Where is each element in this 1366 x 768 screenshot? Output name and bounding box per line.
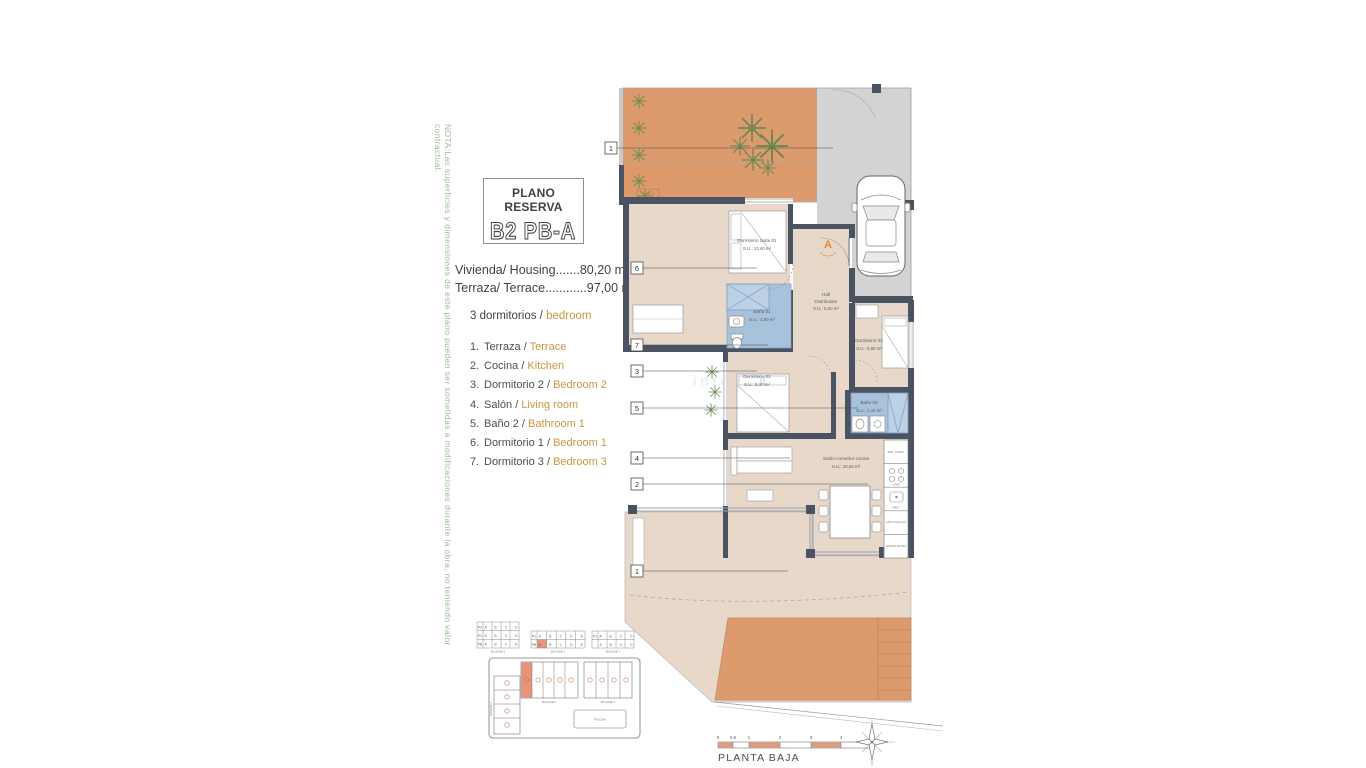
living-room: Salón-comedor-cocina S.U.: 26,50 m² bbox=[633, 447, 881, 570]
kitchen-unit-label: BAR. LAVAD. bbox=[888, 450, 905, 454]
lower-terrace bbox=[625, 512, 911, 702]
legend-en: Living room bbox=[521, 399, 578, 411]
legend-item: 5.Baño 2 / Bathroom 1 bbox=[470, 418, 607, 430]
hob-icon bbox=[889, 468, 903, 481]
keyplan-block-label: BLOQUE 1 bbox=[606, 650, 620, 654]
legend-item: 2.Cocina / Kitchen bbox=[470, 360, 607, 372]
scale-tick: 0 bbox=[717, 735, 720, 740]
bedroom-3: Dormitorio 03 S.U.: 6,60 m² bbox=[855, 305, 908, 382]
room-dorm3-name: Dormitorio 03 bbox=[855, 338, 883, 343]
kitchen-units: BAR. LAVAD. VITRO FREG. LAVA VAJILLAS HO… bbox=[884, 440, 908, 558]
plan-code-art: B2 PB-A bbox=[485, 214, 582, 248]
legend-es: Terraza / bbox=[484, 341, 527, 353]
legend-en: Bedroom 1 bbox=[553, 437, 607, 449]
plan-kicker: PLANO RESERVA bbox=[484, 186, 583, 214]
room-dorm3-area: S.U.: 6,60 m² bbox=[856, 346, 882, 351]
legend-item: 3.Dormitorio 2 / Bedroom 2 bbox=[470, 379, 607, 391]
watermark: interhome bbox=[693, 373, 796, 390]
entrance-marker: A bbox=[824, 239, 832, 251]
marker-7: 7 bbox=[635, 341, 639, 350]
kitchen-unit-label: VITRO bbox=[892, 484, 899, 487]
sink-icon bbox=[890, 492, 903, 502]
keyplan-row-label: P1 bbox=[478, 634, 482, 638]
keyplan-cells: A B C D bbox=[485, 634, 519, 638]
keyplan-block-label: BLOQUE 3 bbox=[491, 650, 505, 654]
kitchen-unit-label: HORNO MICRO bbox=[886, 544, 907, 548]
scale-tick: 5 bbox=[871, 735, 874, 740]
keyplan-cells: A B C D bbox=[485, 626, 519, 630]
room-salon-name: Salón-comedor-cocina bbox=[823, 456, 869, 461]
plan-markers: 1 6 7 3 5 4 2 1 bbox=[605, 142, 868, 577]
legend-en: Bedroom 3 bbox=[553, 456, 607, 468]
keyplan-cells: A B C D E bbox=[539, 643, 583, 647]
area-summary: Vivienda/ Housing.......80,20 m² Terraza… bbox=[455, 262, 636, 297]
kitchen-unit-label: LAVA VAJILLAS bbox=[886, 520, 906, 524]
legend-num: 2. bbox=[470, 360, 484, 372]
scale-bar: 0 0.5 1 2 3 4 5 PLANTA BAJA bbox=[717, 735, 874, 764]
legend-num: 5. bbox=[470, 418, 484, 430]
bedroom-suite: Dormitorio Suite 01 S.U.: 13,40 m² bbox=[633, 211, 786, 333]
compass-rose bbox=[849, 719, 895, 766]
scale-tick: 0.5 bbox=[730, 735, 737, 740]
floor-plan-page: NOTA:Las superficies y dimensiones de es… bbox=[0, 0, 1366, 768]
room-suite-name: Dormitorio Suite 01 bbox=[737, 238, 777, 243]
legend-es: Dormitorio 1 / bbox=[484, 437, 550, 449]
room-bath1-area: S.U.: 3,60 m² bbox=[749, 317, 775, 322]
marker-1: 1 bbox=[609, 144, 613, 153]
legend-num: 3. bbox=[470, 379, 484, 391]
room-hall-name: Hall bbox=[822, 292, 830, 297]
area-housing: Vivienda/ Housing.......80,20 m² bbox=[455, 262, 636, 280]
legend-num: 6. bbox=[470, 437, 484, 449]
legend-en: Bedroom 2 bbox=[553, 379, 607, 391]
legend-es: Cocina / bbox=[484, 360, 524, 372]
disclaimer-note: NOTA:Las superficies y dimensiones de es… bbox=[433, 124, 453, 654]
keyplan-siteplan: BLOQUE 2 BLOQUE 1 BLOQUE 3 PISCINA bbox=[489, 658, 640, 738]
room-suite-area: S.U.: 13,40 m² bbox=[743, 246, 772, 251]
marker-5: 5 bbox=[635, 404, 639, 413]
keyplan: P2 P1 PB A B C D A B C D A B C D BLOQUE … bbox=[477, 622, 640, 738]
siteplan-block-label: BLOQUE 1 bbox=[601, 700, 615, 704]
bathroom-1: Baño 01 S.U.: 3,60 m² bbox=[727, 284, 791, 349]
legend-en: Terrace bbox=[530, 341, 567, 353]
plan-code: B2 PB-A bbox=[490, 218, 576, 245]
legend-es: Dormitorio 2 / bbox=[484, 379, 550, 391]
terrace-railing bbox=[637, 508, 879, 555]
keyplan-row-label: P2 bbox=[478, 626, 482, 630]
legend-num: 1. bbox=[470, 341, 484, 353]
legend-en: Bathroom 1 bbox=[528, 418, 585, 430]
bedrooms-es: 3 dormitorios / bbox=[470, 310, 543, 322]
lower-patio bbox=[714, 618, 943, 731]
plan-title-box: PLANO RESERVA B2 PB-A bbox=[483, 178, 584, 244]
room-bath2-area: S.U.: 3,10 m² bbox=[856, 408, 882, 413]
keyplan-cells: A B C D bbox=[600, 635, 634, 639]
legend-en: Kitchen bbox=[527, 360, 564, 372]
scale-tick: 2 bbox=[779, 735, 782, 740]
legend-item: 6.Dormitorio 1 / Bedroom 1 bbox=[470, 437, 607, 449]
legend-item: 4.Salón / Living room bbox=[470, 399, 607, 411]
legend-num: 4. bbox=[470, 399, 484, 411]
keyplan-row-label: P1 bbox=[532, 635, 536, 639]
marker-4: 4 bbox=[635, 454, 639, 463]
siteplan-block-label: BLOQUE 3 bbox=[489, 702, 493, 716]
siteplan-pool-label: PISCINA bbox=[594, 718, 605, 722]
legend-es: Dormitorio 3 / bbox=[484, 456, 550, 468]
bedrooms-line: 3 dormitorios / bedroom bbox=[470, 310, 591, 322]
bathroom-2: Baño 02 S.U.: 3,10 m² bbox=[851, 393, 908, 433]
scale-tick: 4 bbox=[840, 735, 843, 740]
room-legend: 1.Terraza / Terrace 2.Cocina / Kitchen 3… bbox=[470, 341, 607, 475]
room-bath2-name: Baño 02 bbox=[860, 400, 878, 405]
keyplan-block-label: BLOQUE 2 bbox=[551, 650, 565, 654]
legend-es: Salón / bbox=[484, 399, 518, 411]
keyplan-cells: A B C D bbox=[485, 643, 519, 647]
legend-item: 1.Terraza / Terrace bbox=[470, 341, 607, 353]
interior-floors bbox=[625, 204, 911, 702]
legend-item: 7.Dormitorio 3 / Bedroom 3 bbox=[470, 456, 607, 468]
scale-tick: 1 bbox=[748, 735, 751, 740]
keyplan-row-label: PB bbox=[532, 643, 536, 647]
floor-plan-drawing: ASEO bbox=[0, 0, 1366, 768]
plan-level-name: PLANTA BAJA bbox=[718, 752, 800, 764]
room-bath1-name: Baño 01 bbox=[753, 309, 771, 314]
palm-trees bbox=[632, 94, 787, 203]
car-top-view bbox=[852, 176, 910, 276]
kitchen-unit-label: FREG. bbox=[892, 507, 900, 510]
driveway bbox=[817, 84, 914, 300]
marker-3: 3 bbox=[635, 367, 639, 376]
keyplan-cells: A B C D bbox=[600, 643, 634, 647]
room-hall-area: S.U.: 5,00 m² bbox=[813, 306, 839, 311]
hall: A Hall Distribuidor S.U.: 5,00 m² bbox=[767, 238, 849, 311]
keyplan-cells: A B C D E bbox=[539, 635, 583, 639]
bedrooms-en: bedroom bbox=[546, 310, 591, 322]
siteplan-block-label: BLOQUE 2 bbox=[542, 700, 556, 704]
legend-es: Baño 2 / bbox=[484, 418, 525, 430]
scale-tick: 3 bbox=[810, 735, 813, 740]
marker-1b: 1 bbox=[635, 567, 639, 576]
marker-2: 2 bbox=[635, 480, 639, 489]
windows bbox=[723, 198, 914, 506]
keyplan-row-label: P1 bbox=[593, 635, 597, 639]
patio-steps bbox=[878, 630, 911, 690]
room-salon-area: S.U.: 26,50 m² bbox=[832, 464, 861, 469]
dining-chairs bbox=[819, 490, 881, 532]
legend-num: 7. bbox=[470, 456, 484, 468]
area-terrace: Terraza/ Terrace............97,00 m² bbox=[455, 280, 636, 298]
terrace-tag: ASEO bbox=[642, 192, 655, 197]
upper-terrace: ASEO bbox=[619, 88, 909, 205]
dining-table bbox=[830, 486, 870, 538]
room-hall-name2: Distribuidor bbox=[814, 299, 838, 304]
keyplan-row-label: PB bbox=[478, 643, 482, 647]
bedroom-2: Dormitorio 02 S.U.: 9,10 m² bbox=[737, 356, 831, 432]
